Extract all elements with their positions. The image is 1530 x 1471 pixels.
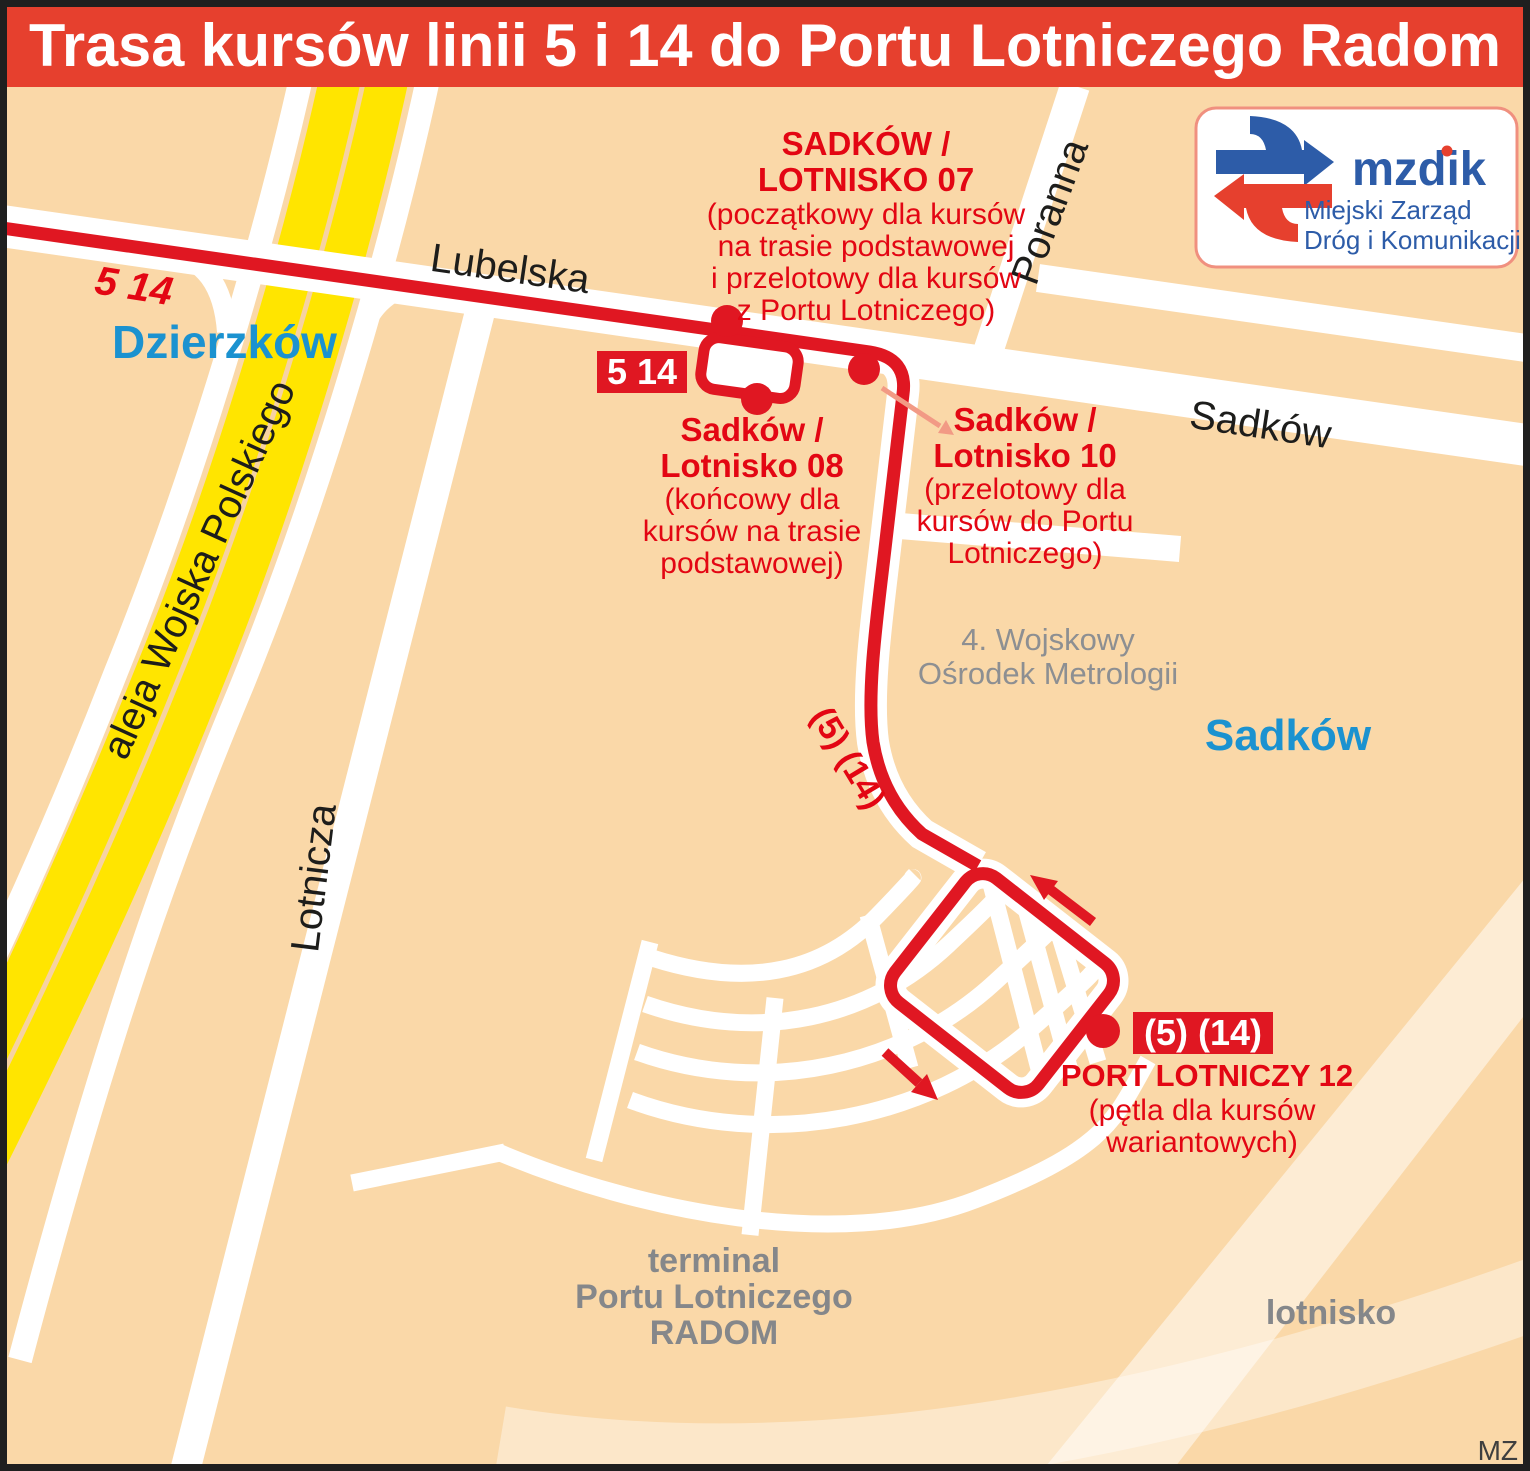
stop12-note-line1: (pętla dla kursów — [1089, 1094, 1316, 1127]
mzdik-i-dot — [1442, 146, 1453, 157]
stop10-name-line2: Lotnisko 10 — [933, 437, 1116, 474]
mzdik-logo-wordmark: mzdik — [1352, 143, 1486, 196]
stop12-note-line2: wariantowych) — [1105, 1126, 1298, 1159]
label-terminal-line2: Portu Lotniczego — [575, 1278, 853, 1316]
label-facility-line2: Ośrodek Metrologii — [918, 656, 1178, 691]
label-sadkow-area: Sadków — [1205, 711, 1372, 760]
route-badge-5-14-label: 5 14 — [607, 351, 677, 392]
stop12-name: PORT LOTNICZY 12 — [1061, 1058, 1353, 1093]
stop08-name-line1: Sadków / — [680, 411, 823, 448]
stop12-badge-label: (5) (14) — [1144, 1012, 1262, 1053]
stop07-name-line2: LOTNISKO 07 — [758, 161, 974, 198]
stop08-note-line2: kursów na trasie — [643, 515, 861, 548]
stop07-note-line1: (początkowy dla kursów — [707, 198, 1026, 231]
header-banner: Trasa kursów linii 5 i 14 do Portu Lotni… — [7, 7, 1523, 87]
stop08-note-line3: podstawowej) — [660, 547, 843, 580]
stop10-note-line2: kursów do Portu — [917, 505, 1134, 538]
label-lotnisko: lotnisko — [1266, 1294, 1396, 1332]
stop08-note-line1: (końcowy dla — [664, 483, 839, 516]
mzdik-subtitle-line2: Dróg i Komunikacji — [1304, 225, 1521, 255]
mzdik-logo-card: mzdik Miejski Zarząd Dróg i Komunikacji — [1196, 108, 1521, 267]
stop-dot-lotnisko-10 — [848, 353, 880, 385]
mzdik-subtitle-line1: Miejski Zarząd — [1304, 195, 1472, 225]
label-facility-line1: 4. Wojskowy — [961, 622, 1135, 657]
label-terminal-line3: RADOM — [650, 1314, 778, 1352]
stop07-note-line3: i przelotowy dla kursów — [711, 262, 1021, 295]
stop07-name-line1: SADKÓW / — [782, 125, 951, 162]
stop-dot-port-lotniczy-12 — [1086, 1014, 1120, 1048]
label-terminal-line1: terminal — [648, 1242, 780, 1280]
page-title: Trasa kursów linii 5 i 14 do Portu Lotni… — [29, 12, 1501, 79]
stop10-name-line1: Sadków / — [953, 401, 1096, 438]
credit: MZ — [1478, 1435, 1518, 1466]
map-screenshot: Lubelska aleja Wojska Polskiego Lotnicza… — [0, 0, 1530, 1471]
stop08-name-line2: Lotnisko 08 — [660, 447, 843, 484]
stop07-note-line2: na trasie podstawowej — [718, 230, 1015, 263]
stop07-note-line4: z Portu Lotniczego) — [737, 294, 995, 327]
stop10-note-line3: Lotniczego) — [947, 537, 1102, 570]
stop10-note-line1: (przelotowy dla — [924, 473, 1126, 506]
label-dzierzkow: Dzierzków — [112, 316, 337, 368]
